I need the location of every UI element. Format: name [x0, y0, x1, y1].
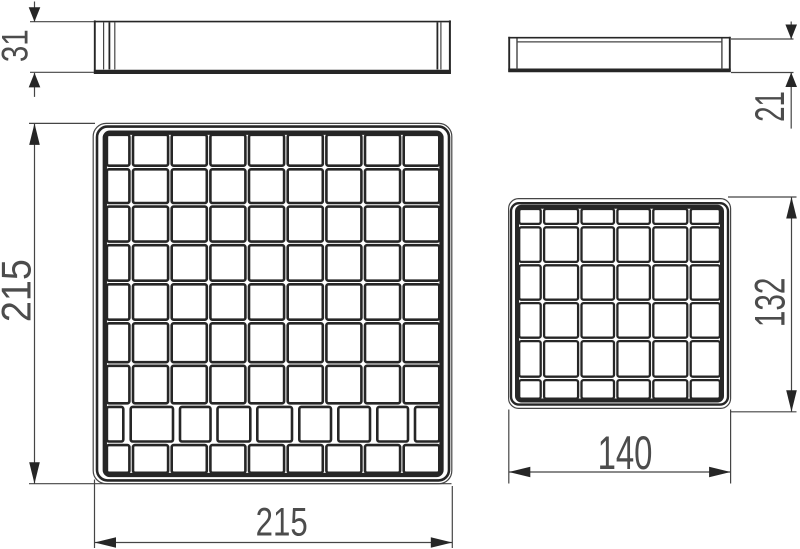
svg-text:215: 215: [0, 259, 40, 322]
svg-text:140: 140: [598, 426, 653, 479]
svg-text:132: 132: [746, 278, 794, 328]
svg-text:215: 215: [256, 500, 308, 545]
svg-text:31: 31: [0, 29, 36, 62]
svg-text:21: 21: [746, 91, 793, 122]
